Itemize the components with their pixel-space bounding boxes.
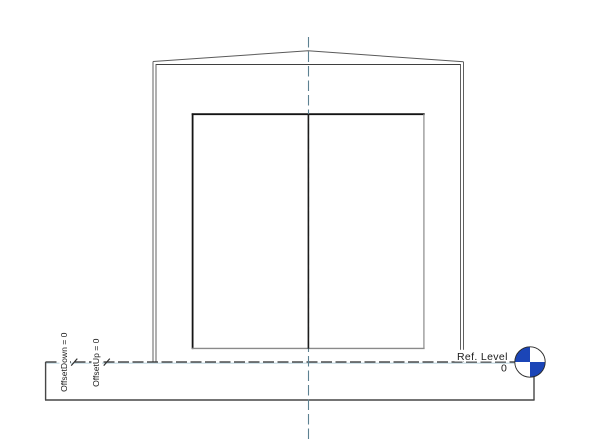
svg-text:Ref. Level: Ref. Level: [457, 351, 508, 363]
svg-text:OffsetUp = 0: OffsetUp = 0: [91, 338, 101, 387]
svg-text:OffsetDown = 0: OffsetDown = 0: [59, 332, 69, 392]
svg-text:0: 0: [501, 362, 507, 374]
